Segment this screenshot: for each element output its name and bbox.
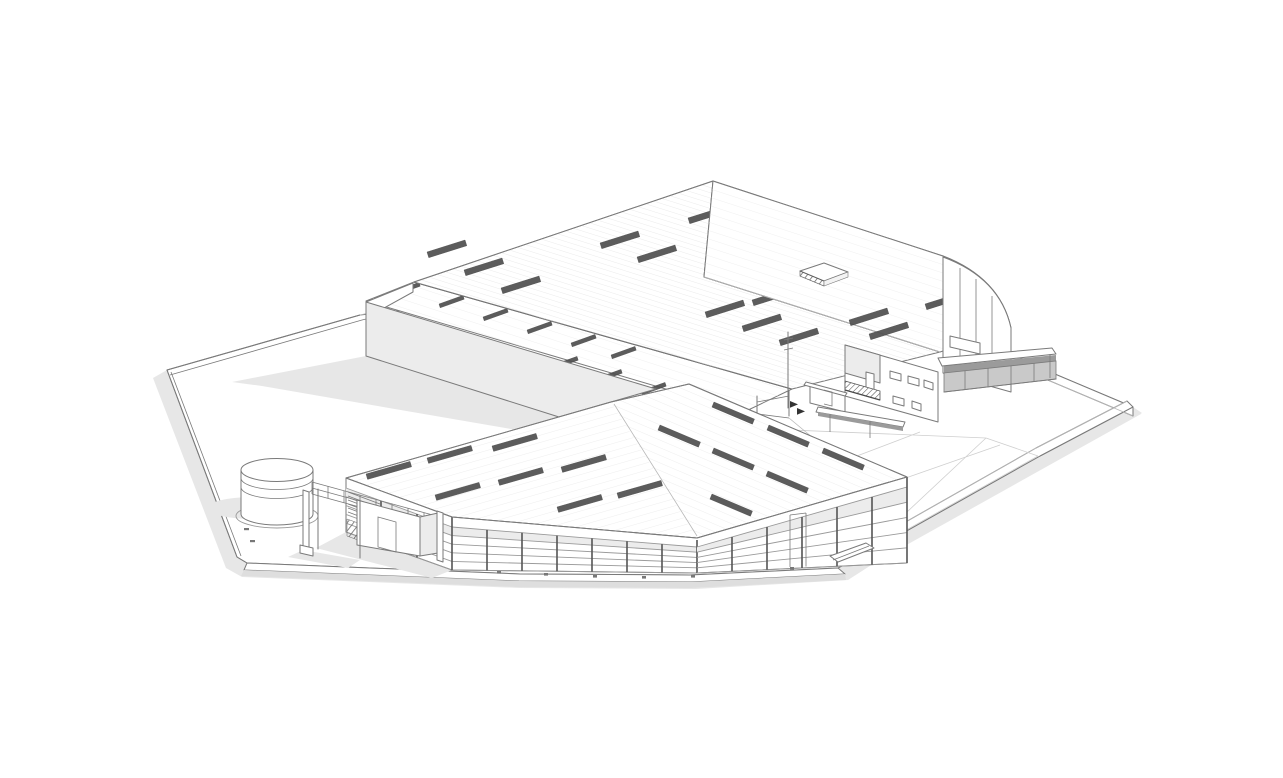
building-complex-drawing [0,0,1283,778]
architectural-rendering-page [0,0,1283,778]
utility-wall-slab-right [437,511,443,562]
utility-wall-slab-left [303,490,309,552]
